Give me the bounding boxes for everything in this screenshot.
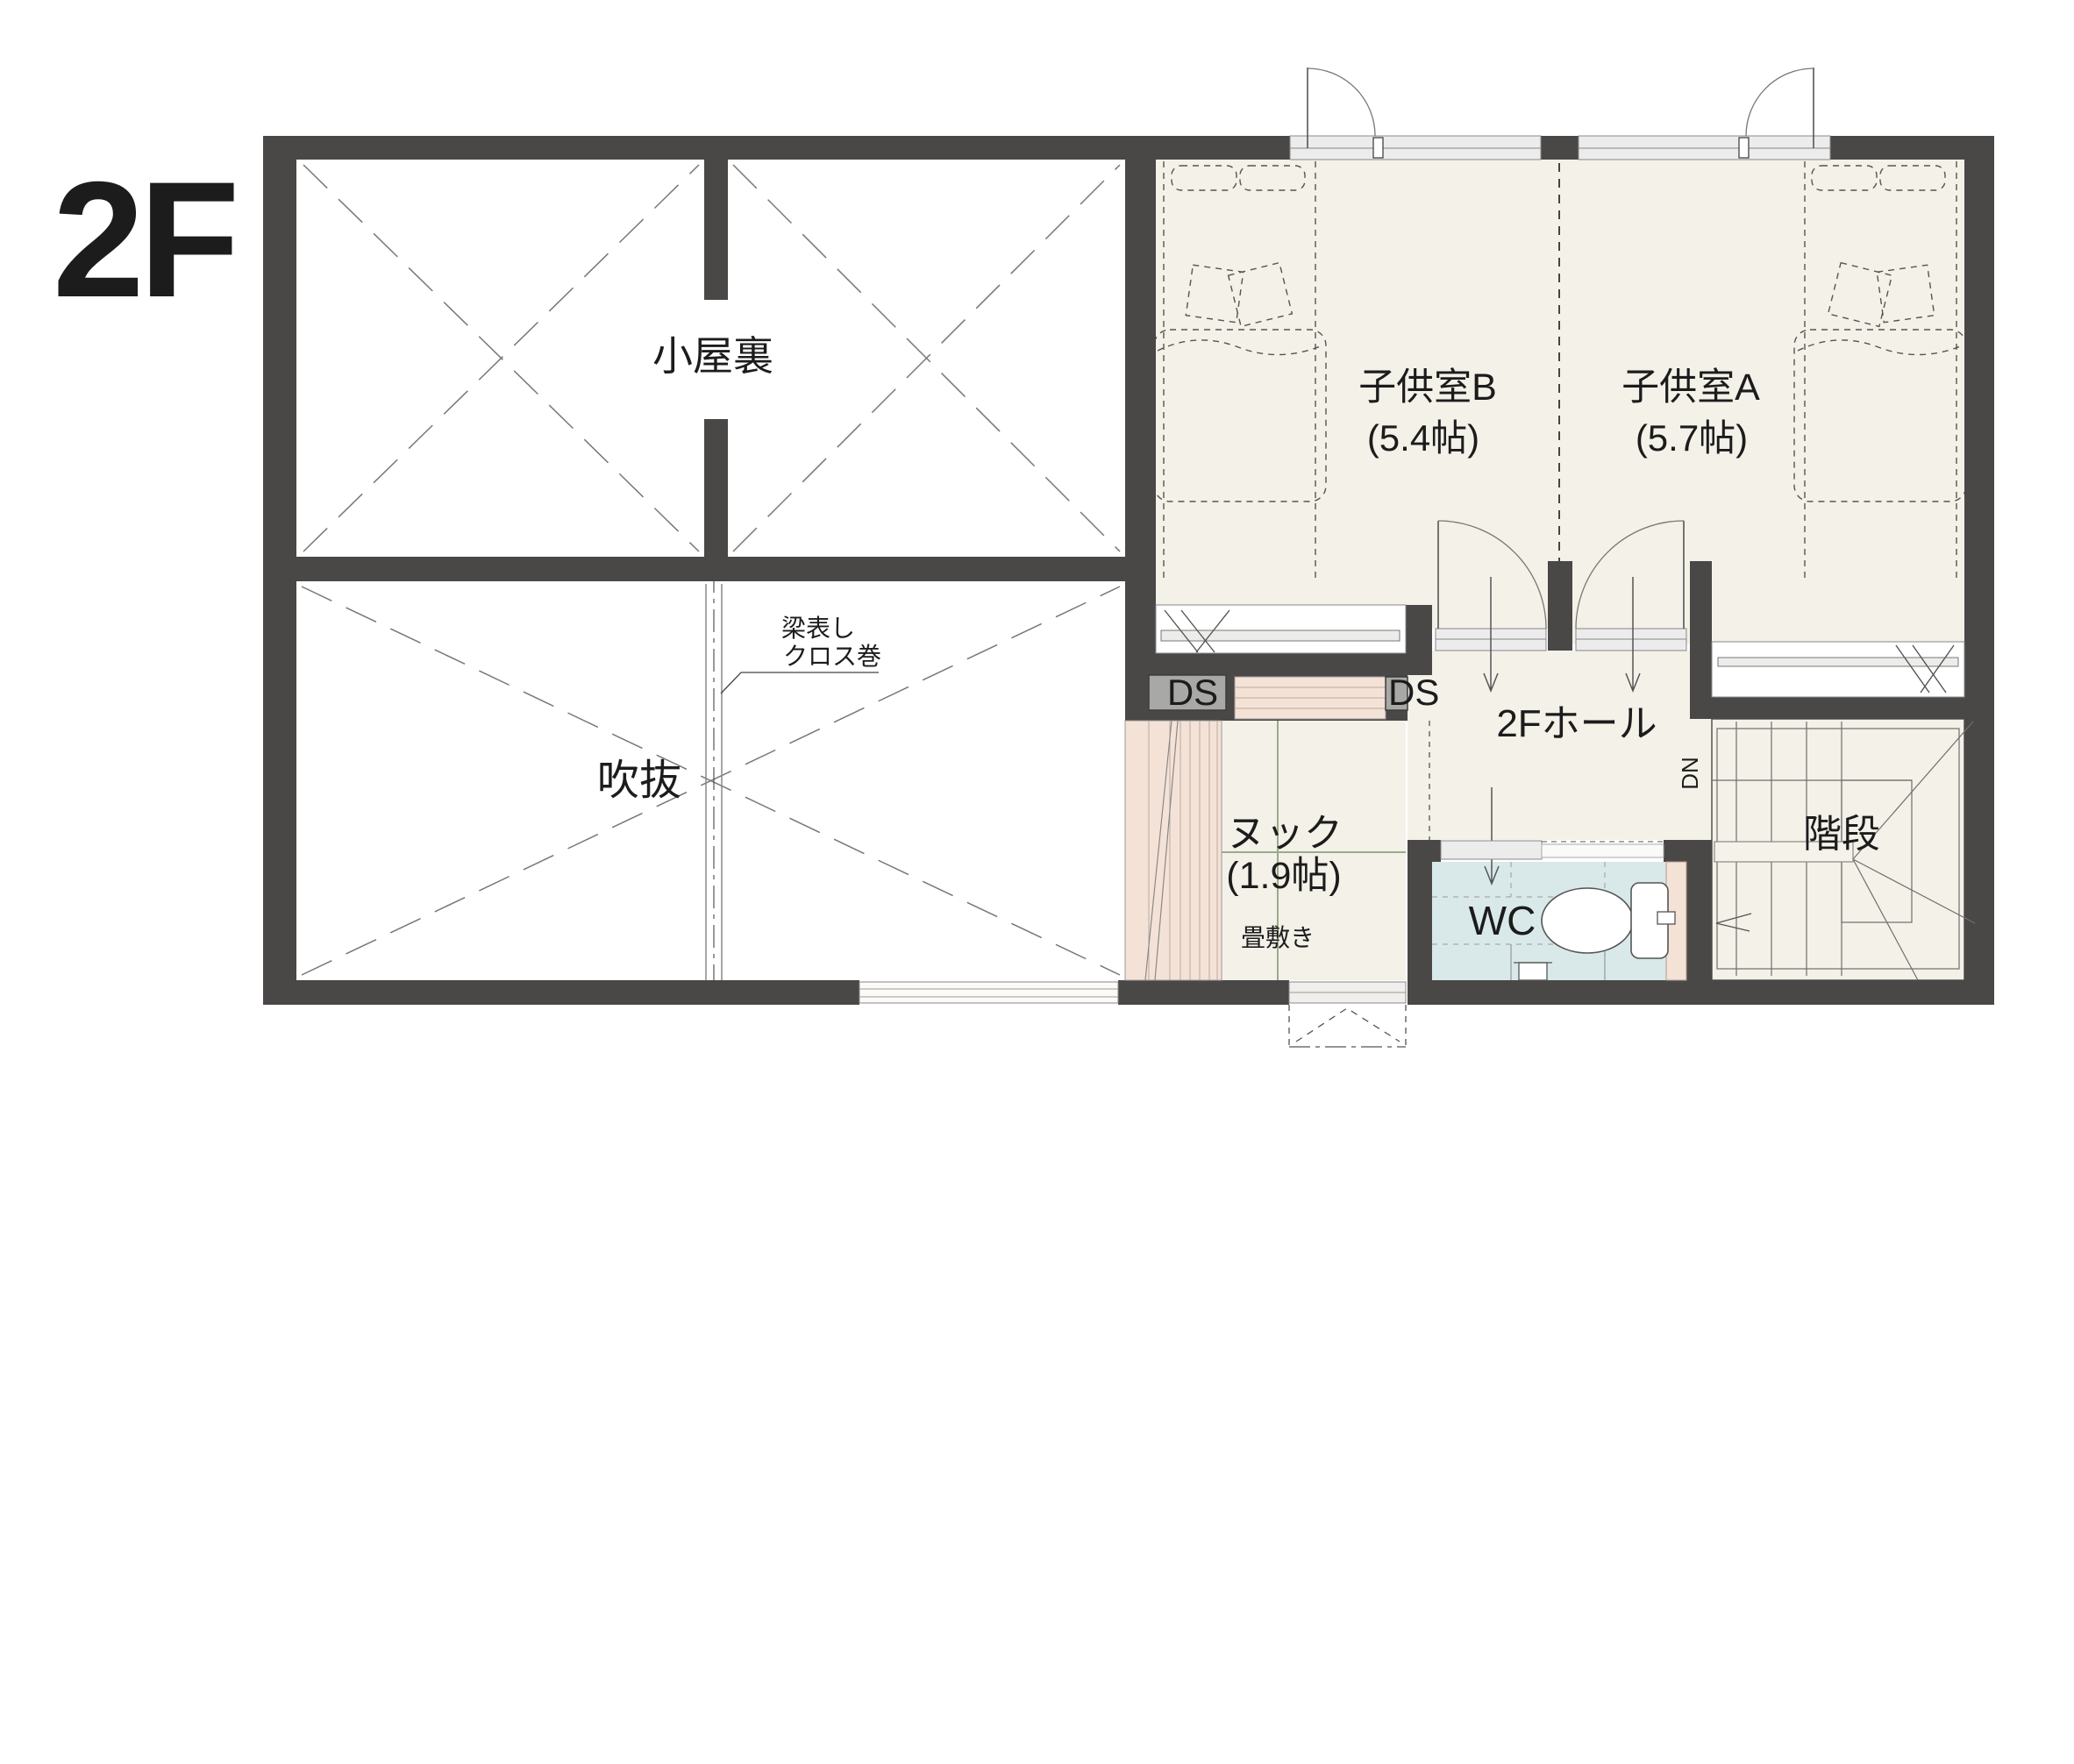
beam-note-line2: クロス巻	[783, 643, 881, 670]
room-label-attic: 小屋裏	[652, 333, 773, 379]
room-area-nook: (1.9帖)	[1226, 855, 1341, 897]
closet-room-a	[1712, 642, 1964, 697]
wall-door-stub	[1548, 561, 1572, 651]
wall-wc-top-left	[1408, 840, 1441, 862]
wall-attic-void-divider	[296, 557, 1125, 581]
wall-room-a-corner	[1690, 561, 1712, 719]
hall-floor	[1408, 651, 1712, 840]
closet-room-b	[1156, 605, 1406, 653]
wall-bottom-middle	[1118, 980, 1289, 1005]
toilet-paper-holder-icon	[1514, 963, 1552, 980]
floor-label: 2F	[53, 147, 234, 331]
wall-wc-right	[1686, 862, 1712, 980]
wall-wc-top-right	[1664, 840, 1712, 862]
closet-rail	[1161, 630, 1400, 641]
wall-bottom-left	[263, 980, 859, 1005]
room-label-void: 吹抜	[597, 758, 681, 804]
room-label-hall: 2Fホール	[1496, 702, 1657, 745]
room-label-child-a: 子供室A	[1621, 366, 1760, 409]
wall-room-b-corner	[1406, 605, 1432, 675]
label-ds-right: DS	[1388, 672, 1439, 713]
wall-wc-left	[1408, 862, 1432, 980]
nook-floor-note: 畳敷き	[1241, 924, 1315, 951]
wall-attic-stub-upper	[704, 160, 728, 300]
wall-top-left	[263, 136, 1290, 160]
wall-section-divider	[1125, 160, 1156, 653]
stairs-dn-label: DN	[1677, 757, 1703, 790]
floor-plan-page: 2F 小屋裏 吹抜 梁表し クロス巻 子供室B (5.4帖) 子供室A (5.7…	[0, 0, 2074, 1764]
room-label-child-b: 子供室B	[1358, 366, 1497, 409]
door-pocket	[1542, 844, 1664, 857]
toilet-flush-lever	[1657, 912, 1675, 924]
window-nook-bottom	[1289, 982, 1406, 1003]
room-label-nook: ヌック	[1227, 812, 1343, 855]
beam-note-line1: 梁表し	[781, 615, 855, 642]
room-area-child-b: (5.4帖)	[1367, 417, 1479, 459]
door-jamb	[1373, 138, 1383, 158]
label-ds-left: DS	[1167, 672, 1218, 713]
door-jamb	[1739, 138, 1749, 158]
wall-bottom-right	[1408, 980, 1994, 1005]
room-label-wc: WC	[1469, 898, 1536, 943]
wall-left	[263, 136, 296, 1005]
nook-step-deck	[1125, 721, 1222, 980]
window-void-bottom	[859, 982, 1118, 1003]
wall-above-stairs	[1690, 697, 1964, 719]
wall-attic-stub-lower	[704, 419, 728, 557]
room-area-child-a: (5.7帖)	[1636, 417, 1748, 459]
wall-right	[1964, 136, 1994, 1005]
toilet-icon	[1542, 883, 1675, 958]
floor-plan-drawing: 2F 小屋裏 吹抜 梁表し クロス巻 子供室B (5.4帖) 子供室A (5.7…	[0, 0, 2074, 1764]
wall-top-middle-stub	[1541, 136, 1579, 160]
room-label-stairs: 階段	[1803, 813, 1880, 856]
